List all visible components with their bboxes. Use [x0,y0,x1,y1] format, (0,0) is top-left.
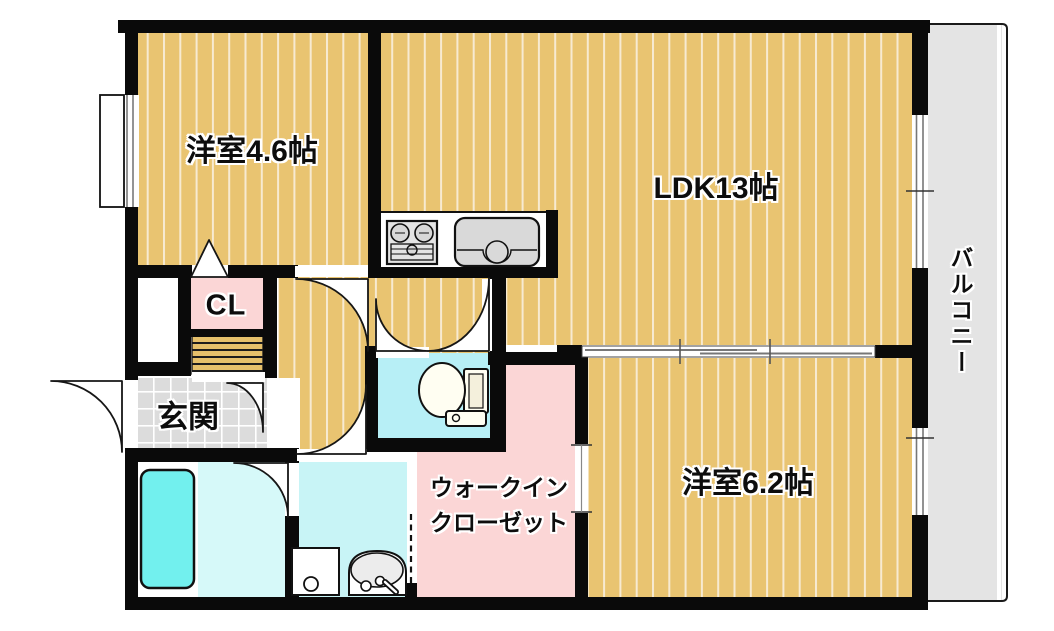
bathtub [141,470,194,588]
kitchen-counter [379,212,549,270]
bathroom-floor-cyan [198,462,285,597]
floorplan-canvas: 洋室4.6帖 LDK13帖 洋室6.2帖 CL 玄関 ウォークイン クローゼット… [0,0,1054,631]
label-walk-in-closet-line1: ウォークイン [430,471,568,506]
window-western-4-6 [100,95,139,207]
washing-machine-pan-icon [292,548,339,595]
label-closet-cl: CL [206,290,247,323]
label-western-4-6: 洋室4.6帖 [186,126,318,170]
label-walk-in-closet: ウォークイン クローゼット [430,471,568,540]
label-balcony: バルコニー [943,246,977,376]
kitchen-sink-icon [455,218,539,266]
label-walk-in-closet-line2: クローゼット [430,505,568,540]
gas-stove-icon [387,221,437,264]
label-western-6-2: 洋室6.2帖 [682,458,814,502]
washbasin-icon [349,551,406,595]
label-ldk: LDK13帖 [653,163,778,207]
shoe-shelf-icon [192,336,263,374]
label-entrance: 玄関 [157,392,219,437]
